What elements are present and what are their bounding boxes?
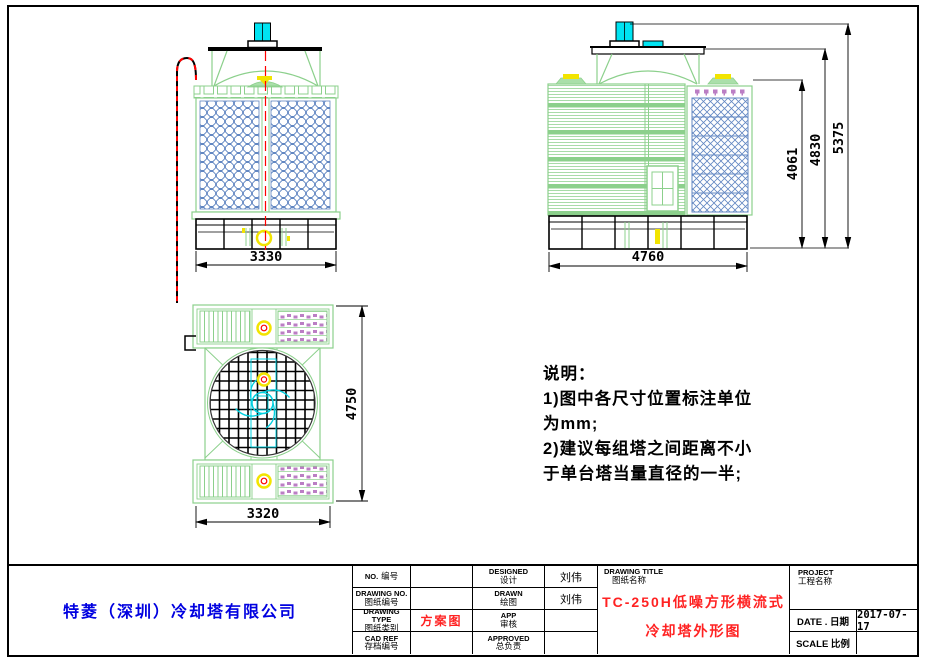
- notes-line: 1)图中各尺寸位置标注单位: [543, 387, 925, 412]
- distribution-panel-bottom: [278, 466, 327, 497]
- plan-width-dim-text: 3320: [247, 506, 280, 522]
- notes-line: 为mm;: [543, 412, 925, 437]
- fill-column-side: [687, 86, 752, 215]
- fan-cowl-side: [597, 54, 699, 84]
- plan-bottom-band: [193, 460, 333, 503]
- date-label-cell: DATE . 日期: [790, 610, 857, 632]
- plan-depth-dim-text: 4750: [344, 388, 360, 421]
- plan-width-dimension: 3320: [196, 506, 330, 528]
- approved-value-cell: [545, 632, 598, 654]
- scale-label-cell: SCALE 比例: [790, 632, 857, 654]
- drawn-label-cell: DRAWN 绘图: [473, 588, 545, 610]
- motor-front: [248, 23, 277, 48]
- notes-line: 于单台塔当量直径的一半;: [543, 462, 925, 487]
- no-value-cell: [411, 566, 473, 588]
- riser-pipe-bottom: [258, 475, 271, 488]
- drawing-no-value-cell: [411, 588, 473, 610]
- title-block: 特菱（深圳）冷却塔有限公司 NO. 编号 DRAWING NO. 图纸编号 DR…: [8, 564, 918, 656]
- side-height-mid-dim-text: 4830: [808, 134, 824, 167]
- project-cell: PROJECT 工程名称: [790, 566, 918, 610]
- drawing-type-value-cell: 方案图: [411, 610, 473, 632]
- distribution-panel-top: [278, 311, 327, 342]
- cad-ref-label-cell: CAD REF 存档编号: [353, 632, 411, 654]
- plan-top-band: [193, 305, 333, 348]
- louver-panel-top: [200, 311, 250, 342]
- company-cell: 特菱（深圳）冷却塔有限公司: [8, 566, 353, 654]
- app-value-cell: [545, 610, 598, 632]
- motor-side: [610, 22, 663, 48]
- riser-pipe-top: [258, 322, 271, 335]
- side-view: 4760 4061 4830 5375: [548, 22, 849, 272]
- fan-deck-side: [590, 47, 706, 54]
- designed-label-cell: DESIGNED 设计: [473, 566, 545, 588]
- cad-ref-value-cell: [411, 632, 473, 654]
- inlet-pipe-right: [708, 74, 738, 84]
- drawn-value-cell: 刘伟: [545, 588, 598, 610]
- louver-panel-bottom: [200, 466, 250, 497]
- drawing-title-cell: DRAWING TITLE 图纸名称 TC-250H低噪方形横流式 冷却塔外形图: [598, 566, 790, 654]
- side-height-total-dim-text: 5375: [831, 122, 847, 155]
- date-value-cell: 2017-07-17: [857, 610, 918, 632]
- side-width-dim-text: 4760: [632, 249, 665, 265]
- spray-nozzles: [691, 88, 748, 96]
- basin-side: [549, 216, 747, 249]
- riser-pipe-center: [258, 374, 270, 386]
- drawing-title-line2: 冷却塔外形图: [598, 621, 789, 641]
- side-height-inner-dim-text: 4061: [785, 148, 801, 181]
- approved-label-cell: APPROVED 总负责: [473, 632, 545, 654]
- fill-panel-left: [200, 101, 259, 209]
- fill-panel-right: [271, 101, 330, 209]
- plan-depth-dimension: 4750: [336, 306, 368, 501]
- designed-value-cell: 刘伟: [545, 566, 598, 588]
- side-width-dimension: 4760: [549, 249, 747, 272]
- inlet-pipe-left: [556, 74, 586, 84]
- drain-fitting: [655, 229, 660, 244]
- notes-block: 说明： 1)图中各尺寸位置标注单位 为mm; 2)建议每组塔之间距离不小 于单台…: [543, 362, 925, 487]
- drawing-title-line1: TC-250H低噪方形横流式: [598, 592, 789, 612]
- front-width-dim-text: 3330: [250, 249, 283, 265]
- drawing-no-label-cell: DRAWING NO. 图纸编号: [353, 588, 411, 610]
- drawing-type-label-cell: DRAWING TYPE 图纸类别: [353, 610, 411, 632]
- scale-value-cell: [857, 632, 918, 654]
- front-view: 3330: [177, 23, 340, 303]
- plan-middle: [205, 348, 320, 460]
- cad-sheet: 3330: [0, 0, 928, 664]
- power-cable: [177, 58, 196, 303]
- notes-heading: 说明：: [543, 362, 925, 387]
- front-width-dimension: 3330: [196, 249, 336, 272]
- app-label-cell: APP 审核: [473, 610, 545, 632]
- fan-guard-grid: [210, 351, 315, 456]
- notes-line: 2)建议每组塔之间距离不小: [543, 437, 925, 462]
- plan-view: 4750 3320: [185, 305, 368, 528]
- company-name: 特菱（深圳）冷却塔有限公司: [63, 598, 297, 622]
- no-label-cell: NO. 编号: [353, 566, 411, 588]
- drawing-title-label: DRAWING TITLE 图纸名称: [598, 566, 789, 585]
- access-door: [647, 166, 678, 211]
